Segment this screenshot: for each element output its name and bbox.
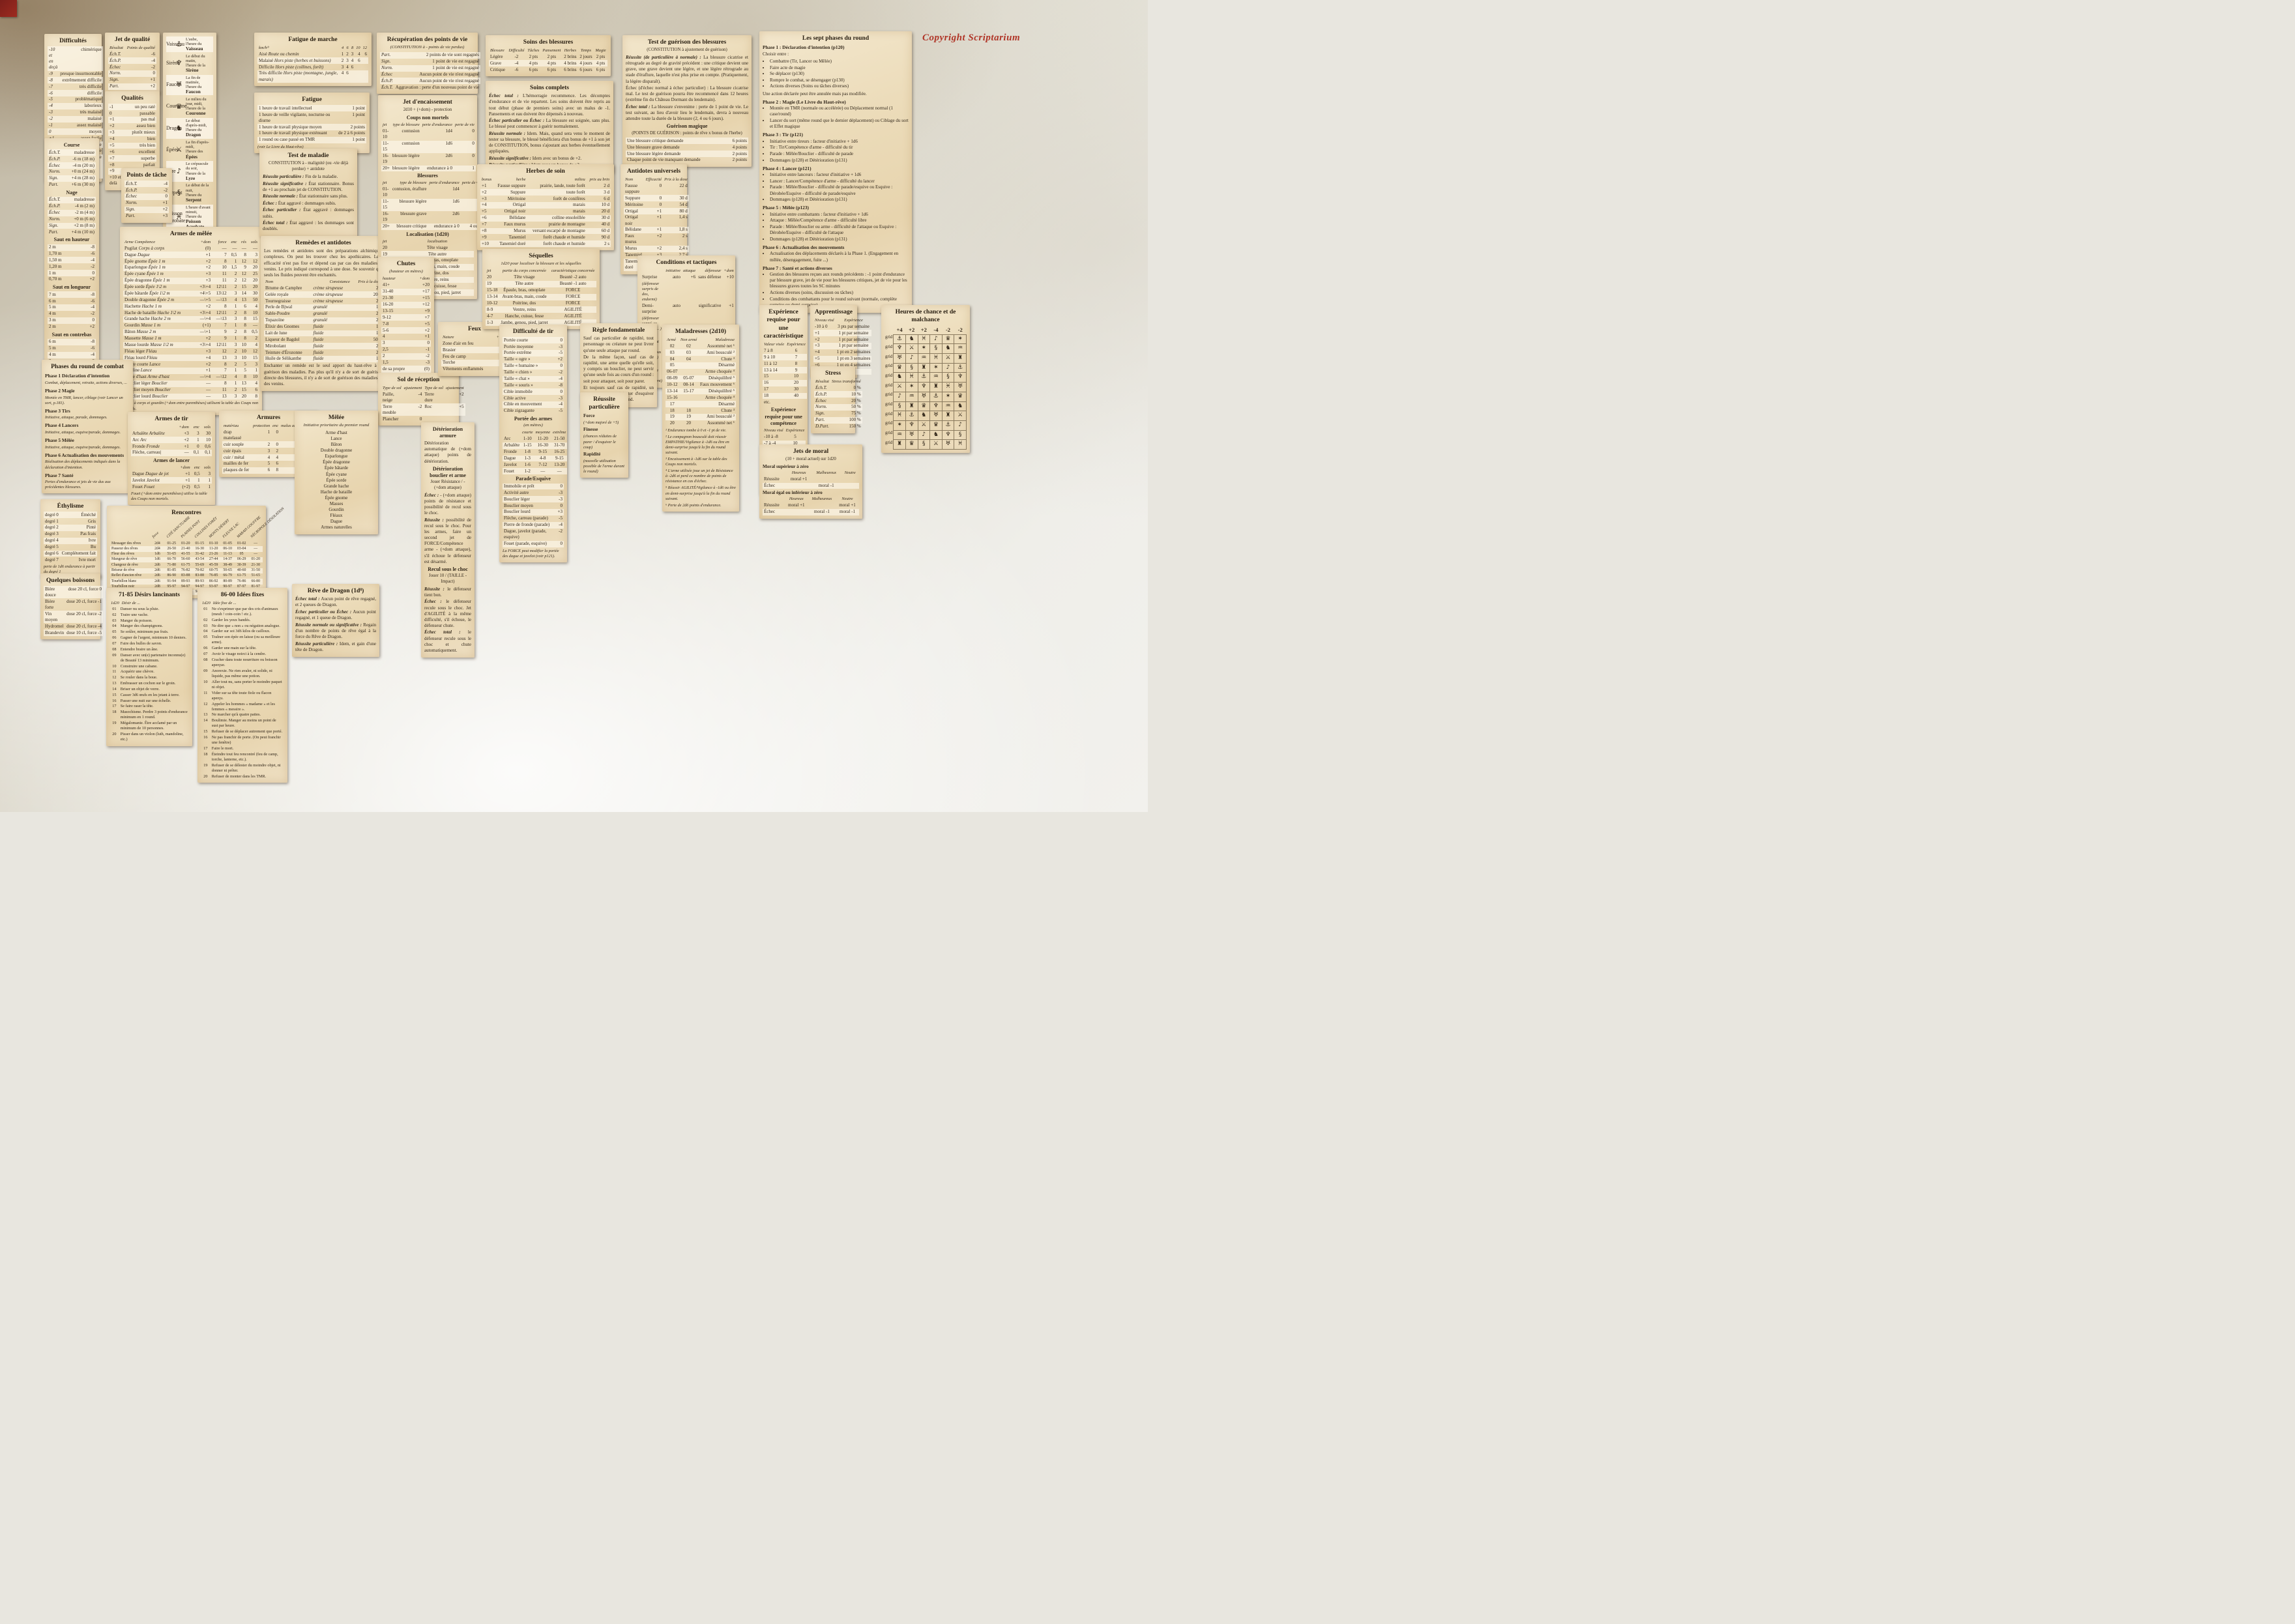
table-cell: 2 pts (541, 53, 563, 60)
table-cell: Chute ³ (698, 407, 736, 414)
list-item: 14Boulimie. Manger au moins un point de … (201, 718, 284, 729)
table-cell: 4-8 (534, 456, 551, 462)
table-cell: 1-3 (521, 456, 534, 462)
column-header: Malheureux (811, 471, 841, 476)
column-header: Expérience (785, 341, 807, 347)
table-row: 7 m-8 (48, 291, 96, 298)
data-table: HeureuxMalheureuxNeutreRéussitemoral +1É… (763, 471, 859, 489)
table-cell: 76-86 (235, 579, 248, 584)
row-value: 1 point (337, 105, 366, 111)
table-cell: 1d6 (150, 552, 164, 557)
column-header: +dom (175, 424, 190, 430)
table-cell: 05 (665, 362, 679, 369)
list-item: Épée bâtarde (298, 465, 375, 471)
table-cell: 60 d (587, 228, 611, 235)
table-cell: +10 (480, 240, 494, 247)
hour-symbol-icon: ⚓ (905, 411, 918, 421)
table-cell: 21-50 (551, 436, 567, 442)
table-row: D.Part.150 % (814, 424, 862, 430)
paragraph: Réussite significative : Idem avec un bo… (489, 156, 610, 162)
table-cell: 1d6 (150, 557, 164, 562)
column-header: jet (381, 181, 391, 186)
paragraph: Les remèdes et antidotes sont des prépar… (264, 248, 383, 278)
table-row: degré 5Bu (44, 544, 97, 551)
row-value: 2 points de vie sont regagnés (394, 52, 480, 59)
item-number: 05 (110, 630, 121, 635)
table-cell: 2 (228, 387, 239, 394)
hour-symbol-icon: ♅ (905, 430, 918, 440)
column-header: Heureux (786, 471, 811, 476)
table-cell: Grave (489, 60, 507, 66)
grid-header: -2 (942, 326, 954, 335)
table-row: 5 m-4 (48, 304, 96, 311)
table-cell: -2 (403, 403, 424, 416)
row-value: Éméché (60, 512, 97, 518)
row-value: +2 (154, 207, 169, 213)
table-row: Sable-Poudregranulé2 s (264, 311, 383, 317)
row-value: Ivre mort (60, 557, 97, 563)
table-cell: 1 (248, 368, 259, 374)
column-header: enc (228, 239, 239, 245)
bullet-item: Dommages (p128) et Détérioration (p131) (770, 158, 909, 164)
hour-symbol-icon: ♞ (905, 334, 918, 344)
row-value: Pas frais (60, 531, 97, 538)
hour-symbol-icon: ♆ (930, 401, 943, 411)
table-cell: 0 (454, 153, 476, 166)
table-cell (423, 416, 445, 422)
table-row: 0303Ami bousculé ² (665, 349, 736, 356)
table-row: 13-15+9 (381, 308, 431, 315)
table-cell (350, 70, 355, 83)
list-item: 01Ne s'exprimer que par des cris d'anima… (201, 606, 284, 617)
row-label: Bouclier lourd (503, 509, 557, 515)
item-text: Se soûler, minimum pas frais. (121, 630, 189, 635)
table-row: 1 m0 (48, 270, 96, 276)
table-cell: Esparlongue Épée 1 m (123, 265, 196, 271)
table-cell: 100 % (830, 417, 862, 424)
bullet-item: Initiative entre tireurs : facteur d'ini… (770, 139, 909, 145)
table-cell: Arbalète Arbalète (131, 430, 175, 437)
term-lead: Réussite : (424, 587, 445, 592)
row-value: 0 (154, 194, 169, 200)
table-row: 1510 (763, 373, 807, 380)
row-value: dose 20 cl, force 0 (65, 586, 103, 598)
table-cell: 1 (252, 429, 271, 441)
table-cell: 0 (454, 128, 476, 141)
row-label: Cible zigzagante (503, 408, 554, 414)
table-cell: cuir épais (222, 448, 252, 454)
table-cell (841, 483, 859, 489)
table-cell: Fronde Fronde (131, 443, 175, 450)
grid-row: grid♆⚔✶§♞♒ (884, 344, 967, 354)
item-text: Acquérir une chèvre. (121, 669, 189, 675)
table-cell: Ventre, reins (499, 306, 550, 313)
row-label: -2 (48, 116, 59, 123)
column-header: +dom (177, 465, 192, 471)
data-table: Bière doucedose 20 cl, force 0Bière fort… (44, 586, 103, 636)
item-number: 10 (110, 663, 121, 669)
table-cell: 06-29 (235, 557, 248, 562)
table-cell: 01-20 (248, 557, 263, 562)
phases-combat-card: Phases du round de combatPhase 1 Déclara… (42, 360, 133, 493)
table-row: Immobile et prêt0 (503, 484, 564, 490)
hour-desc: Le début d'après-midi, (186, 119, 213, 128)
data-table: courtemoyenneextrêmeArc1-1011-2021-50Arb… (503, 430, 567, 474)
table-row: 1,20 m-2 (48, 263, 96, 270)
hour-symbol-icon: ♆ (918, 383, 930, 392)
hour-symbol-icon: ♛ (894, 363, 906, 373)
table-cell: Échec (814, 398, 830, 404)
grid-header: -4 (930, 326, 943, 335)
table-cell: — (212, 245, 227, 252)
table-cell: Échec (108, 64, 125, 70)
table-cell: — (175, 450, 190, 456)
hour-row: Couronne♛Le milieu du jour, midi,l'heure… (166, 96, 213, 117)
table-cell: 1 (340, 51, 345, 57)
list-item: 09Anorexie. Ne rien avaler, ni solide, n… (201, 668, 284, 679)
row-value: -5 (554, 408, 564, 414)
table-row: Paille, neige-4Terre dure+2 (381, 391, 465, 403)
paragraph: De la même façon, sauf cas de rapidité, … (583, 355, 654, 384)
table-cell: 10 (238, 348, 247, 355)
fatigue-marche-card: Fatigue de marchekm/hᵈʳ4681012Aisé Route… (254, 33, 372, 86)
table-cell: 61-75 (235, 573, 248, 579)
column-header: ajustement (403, 385, 424, 391)
table-row: Bière fortedose 20 cl, force -1 (44, 598, 103, 611)
table-cell: prairie, lande, toute forêt (527, 182, 586, 189)
table-row: -10 à -85 (763, 434, 806, 441)
table-row: Réussitemoral +1 (763, 476, 859, 483)
card-subtitle: (CONSTITUTION à - points de vie perdus) (380, 45, 475, 51)
table-cell: 4 (228, 374, 239, 381)
hour-number: grid (884, 411, 894, 421)
table-cell: 20+ (381, 224, 391, 230)
weapon-skill: Masse 1 m (139, 323, 160, 328)
item-text: Se rouler dans la boue. (121, 675, 189, 681)
item-number: 12 (201, 701, 212, 712)
hour-symbol-icon: ♛ (905, 440, 918, 450)
table-cell: 08-09 (665, 375, 679, 382)
table-cell: Pugilat Corps à corps (123, 245, 196, 252)
table-cell: 01-02 (235, 541, 248, 546)
remedes-card: Remèdes et antidotesLes remèdes et antid… (261, 236, 386, 391)
table-cell: 11-20 (534, 436, 551, 442)
row-value: +0 m (24 m) (65, 169, 96, 175)
row-label: Éch.T. (48, 149, 65, 156)
list-item: 02Garder les yeux bandés. (201, 617, 284, 623)
table-cell: 2 (228, 361, 239, 368)
card-subtitle: 1d20 pour localiser la blessure et les s… (486, 261, 596, 267)
table-row: Dague Dague de jet+10,53 (131, 471, 212, 477)
card-title: Heures de chance et de malchance (884, 308, 967, 325)
column-header: Prix à la dose (663, 177, 689, 182)
table-cell: 11 (212, 387, 227, 394)
reve-dragon-card: Rêve de Dragon (1d⁸)Échec total : Aucun … (292, 584, 379, 657)
table-row: -4laborieux (48, 103, 103, 109)
table-cell: 5 (238, 361, 247, 368)
phase-heading: Phase 5 : Mêlée (p123) (763, 205, 909, 211)
table-row: 1 heure de travail physique exténuantde … (257, 130, 366, 137)
row-label: 1 heure de travail physique moyen (257, 124, 337, 130)
table-cell (841, 476, 859, 483)
table-cell: 2 (271, 448, 280, 454)
footnote: ⁵ Réussir AGILITÉ/Vigilance à -1d6 ou êt… (665, 486, 736, 501)
table-cell: 10 (201, 437, 212, 443)
item-number: 11 (110, 669, 121, 675)
section-heading: Saut en longueur (48, 284, 96, 291)
row-value: plutôt mieux (130, 130, 156, 136)
table-cell: Suppure (494, 189, 527, 196)
item-number: 17 (110, 704, 121, 710)
hour-symbol-icon: ♆ (954, 373, 967, 383)
card-title: Herbes de soin (480, 167, 611, 175)
table-cell: 11 à 12 (763, 360, 785, 367)
table-cell: +4 (196, 355, 212, 361)
row-label: Bière douce (44, 586, 65, 598)
table-row: Méritoine054 d (624, 201, 689, 208)
row-value: extrêmement difficile (59, 77, 103, 83)
table-row: Éch.P.-4 m (2 m) (48, 203, 96, 210)
table-cell: Fléau lourd Fléau (123, 355, 196, 361)
table-row: Éch.P.-2 (124, 187, 169, 194)
table-cell: 4-7 (486, 313, 499, 319)
table-row: Arc Arc+2110 (131, 437, 212, 443)
fatigue-card: Fatigue1 heure de travail intellectuel1 … (254, 93, 370, 153)
table-cell: Fouet (503, 468, 521, 474)
table-cell: 3 (345, 57, 350, 64)
table-cell: 12 (248, 258, 259, 265)
card-title: Réussite particulière (583, 396, 625, 412)
item-number: 13 (110, 681, 121, 687)
table-cell: 89-93 (192, 579, 206, 584)
table-cell: 2 jours (578, 53, 594, 60)
list-item: 16Passer une nuit sur une échelle. (110, 698, 189, 704)
card-title: 86-00 Idées fixes (201, 591, 284, 599)
data-table: Éch.T.maladresseÉch.P.-4 m (2 m)Échec-2 … (48, 197, 96, 235)
data-table: NomConsistancePrix à la doseBitume de Ca… (264, 279, 383, 362)
column-header: Stress transformé (830, 379, 862, 384)
table-row: Bouclier léger-3 (503, 496, 564, 502)
table-row: Norm.50 % (814, 404, 862, 411)
table-cell: +6 (682, 274, 697, 302)
table-row: Une blessure critique demande6 points (626, 138, 748, 144)
table-cell: 80-89 (220, 579, 234, 584)
table-row: Zone d'air en feu+10 (441, 340, 508, 347)
table-cell: fluide (312, 356, 351, 362)
table-row: Échec-2 m (4 m) (48, 210, 96, 216)
table-cell: 8 (238, 374, 247, 381)
corner-ornament-icon (0, 0, 17, 17)
table-cell: 20 (785, 380, 807, 386)
table-cell: colline ensoleillée (527, 215, 586, 222)
table-row: 31-40+17 (381, 289, 431, 295)
item-text: Ne dire que « non » ou négation analogue… (212, 623, 284, 629)
card-title: Mêlée (298, 414, 375, 422)
table-cell: Bouclier moyen Bouclier (123, 387, 196, 394)
table-row: 3 m0 (48, 317, 96, 324)
table-row: Dague, javelot (parade, esquive)-2 (503, 529, 564, 541)
table-cell: 41+ (381, 282, 418, 289)
column-header: 8 (350, 45, 355, 51)
column-header: force (212, 239, 227, 245)
hour-desc: L'heure d'avant minuit, (186, 205, 213, 214)
table-cell: 1-10 (521, 436, 534, 442)
paragraph: Échec particulier : État aggravé : domma… (263, 207, 354, 219)
table-header-row: RésultatStress transformé (814, 379, 862, 384)
column-header: rés (238, 239, 247, 245)
weapon-skill: Fléau (145, 355, 157, 360)
table-row: 01-10contusion, éraflure1d40 (381, 186, 483, 199)
term-lead: Réussite normale : (263, 194, 298, 199)
table-row: 5 m-6 (48, 345, 96, 352)
table-cell: 10-12 (665, 382, 679, 388)
footnote: Initiative, attaque, esquive/parade, dom… (45, 430, 130, 435)
table-cell: 14-37 (220, 557, 234, 562)
table-cell: 51-65 (248, 573, 263, 579)
table-row: Épée dragonne Épée 1 m+31121220 (123, 278, 259, 284)
column-header: enc (190, 424, 201, 430)
table-cell: 2d6 (428, 211, 460, 224)
bullet-item: Se déplacer (p130) (770, 71, 909, 77)
list-item: 09Danser avec un(e) partenaire inconnu(e… (110, 652, 189, 663)
row-label: Échec (48, 162, 65, 169)
table-cell: 03 (679, 349, 699, 356)
table-row: degré 0Éméché (44, 512, 97, 518)
table-cell: +4 (813, 349, 836, 356)
table-cell: drap matelassé (222, 429, 252, 441)
row-label: Échec (124, 194, 154, 200)
hour-symbol-icon: ⚔ (905, 344, 918, 354)
table-cell: 6 (785, 347, 807, 354)
column-header: perte d'endurance (421, 123, 454, 128)
hour-label: Le début d'après-midi,l'heure du Dragon (184, 119, 213, 138)
table-cell: 08-14 (679, 382, 699, 388)
row-value: -4 (75, 304, 96, 311)
row-label: Taille « chat » (503, 376, 554, 383)
card-title: Difficultés (48, 37, 98, 45)
column-header: jet (381, 239, 401, 244)
table-cell: 3 d (587, 189, 611, 196)
column-header: Valeur visée (763, 341, 785, 347)
table-cell: -6 (507, 66, 526, 73)
row-value: malaisé (59, 116, 103, 123)
paragraph: Échec : - (+dom attaque) points de résis… (424, 493, 471, 516)
paragraph: Échec (d'échec normal à échec particulie… (626, 85, 748, 103)
row-label: Cible en mouvement (503, 401, 554, 408)
table-cell: 3 (228, 355, 239, 361)
row-label: +5 (108, 143, 130, 149)
table-cell: 1 (228, 368, 239, 374)
spacer (884, 326, 894, 335)
herbes-soin-card: Herbes de soinbonusherbemilieuprix au br… (477, 164, 614, 250)
hour-name: Épées (186, 154, 197, 160)
column-header: sols (201, 424, 212, 430)
column-header: partie du corps concernée (499, 268, 550, 274)
table-cell: 3 (248, 252, 259, 258)
item-text: Danser avec un(e) partenaire inconnu(e) … (121, 652, 189, 663)
table-cell: 03-04 (235, 546, 248, 551)
weapon-skill: Dague (136, 252, 149, 257)
hour-name: Vaisseau (186, 46, 203, 51)
table-cell: -10 à 0 (813, 323, 836, 330)
table-cell: 0,5 (248, 329, 259, 336)
table-cell: Fouet Fouet (131, 484, 177, 490)
table-cell: 12 (238, 278, 247, 284)
table-row: 10-1208-14Faux mouvement ⁶ (665, 382, 736, 388)
hour-row: Épées⚔La fin d'après-midi,l'heure des Ép… (166, 139, 213, 160)
list-item: 19Mégalomanie. Être acclamé par un minim… (110, 721, 189, 732)
column-header: enc (192, 465, 201, 471)
item-number: 10 (201, 679, 212, 690)
row-value: Aggravation : perte d'un nouveau point d… (394, 84, 480, 91)
table-row: Feu de camp+4 (441, 353, 508, 360)
table-cell: Arme choquée ⁴ (698, 394, 736, 401)
table-row: Vin moyendose 20 cl, force -2 (44, 611, 103, 623)
column-header: Nom (624, 177, 645, 182)
table-cell: 4 pts (594, 60, 607, 66)
paragraph: Choisir entre : (763, 51, 909, 57)
table-cell: granulé (312, 311, 351, 317)
weapon-skill: Épée 1\2 m (145, 284, 166, 289)
row-label: 7 m (48, 291, 75, 298)
reussite-particuliere-card: Réussite particulièreForce(+dom majoré d… (580, 392, 628, 478)
weapon-skill: Fléau (145, 349, 156, 354)
table-row: ÉchecAucun point de vie n'est regagné (380, 72, 480, 78)
table-cell: +1 (645, 208, 664, 214)
table-cell: 7 (212, 252, 227, 258)
table-cell: +2 (196, 265, 212, 271)
table-cell: 3 (350, 51, 355, 57)
dragon-icon: ♞ (174, 124, 184, 133)
row-label: 4 m (48, 311, 75, 317)
card-title: Stress (814, 370, 852, 377)
phase-heading: Phase 6 Actualisation des mouvements (45, 452, 130, 459)
section-heading: Portée des armes (503, 416, 564, 422)
table-cell: 30 d (587, 215, 611, 222)
hour-desc: La fin de matinée, (186, 76, 213, 85)
table-cell: 2 (340, 57, 345, 64)
desirs-card: 71-85 Désirs lancinants1d20Désir de ...0… (106, 588, 192, 746)
grid-header: -2 (954, 326, 967, 335)
table-row: Épée gnome Épée 1 m+2811212 (123, 258, 259, 265)
recuperation-card: Récupération des points de vie(CONSTITUT… (377, 33, 478, 94)
table-row: +9Tanemielforêt chaude et humide90 d (480, 234, 611, 240)
table-row: degré 7Ivre mort (44, 557, 97, 563)
paragraph: Réussite normale : État stationnaire san… (263, 194, 354, 199)
table-cell: 2 brins (563, 53, 578, 60)
melee-card: MêléeInitiative prioritaire du premier r… (295, 411, 378, 534)
table-row: Plancher0 (381, 416, 465, 422)
table-cell: 61-75 (179, 562, 192, 568)
table-cell: cuir souple (222, 441, 252, 448)
row-label: Sign. (48, 175, 65, 182)
column-header: Niveau visé (813, 317, 836, 323)
table-row: 13-14Avant-bras, main, coudeFORCE (486, 294, 596, 300)
table-cell: moral -1 (811, 483, 841, 489)
table-header-row: 1d20Idée fixe de ... (201, 600, 284, 606)
table-row: -2malaisé (48, 116, 103, 123)
column-header: Points de qualité (125, 45, 156, 51)
chutes-card: Chutes(hauteur en mètres)hauteur+dom41++… (378, 257, 434, 381)
table-cell: 30-39 (235, 562, 248, 568)
row-value: 2 points (725, 157, 748, 164)
hour-name-line: l'heure de la Sirène (186, 63, 213, 73)
column-header: Heureux (785, 497, 808, 502)
table-cell: 2 pts (526, 53, 541, 60)
data-table: Type de solajustementType de solajusteme… (381, 385, 465, 422)
table-cell: +3 (480, 196, 494, 202)
table-cell: Difficile Hors piste (collines, forêt) (257, 64, 340, 70)
